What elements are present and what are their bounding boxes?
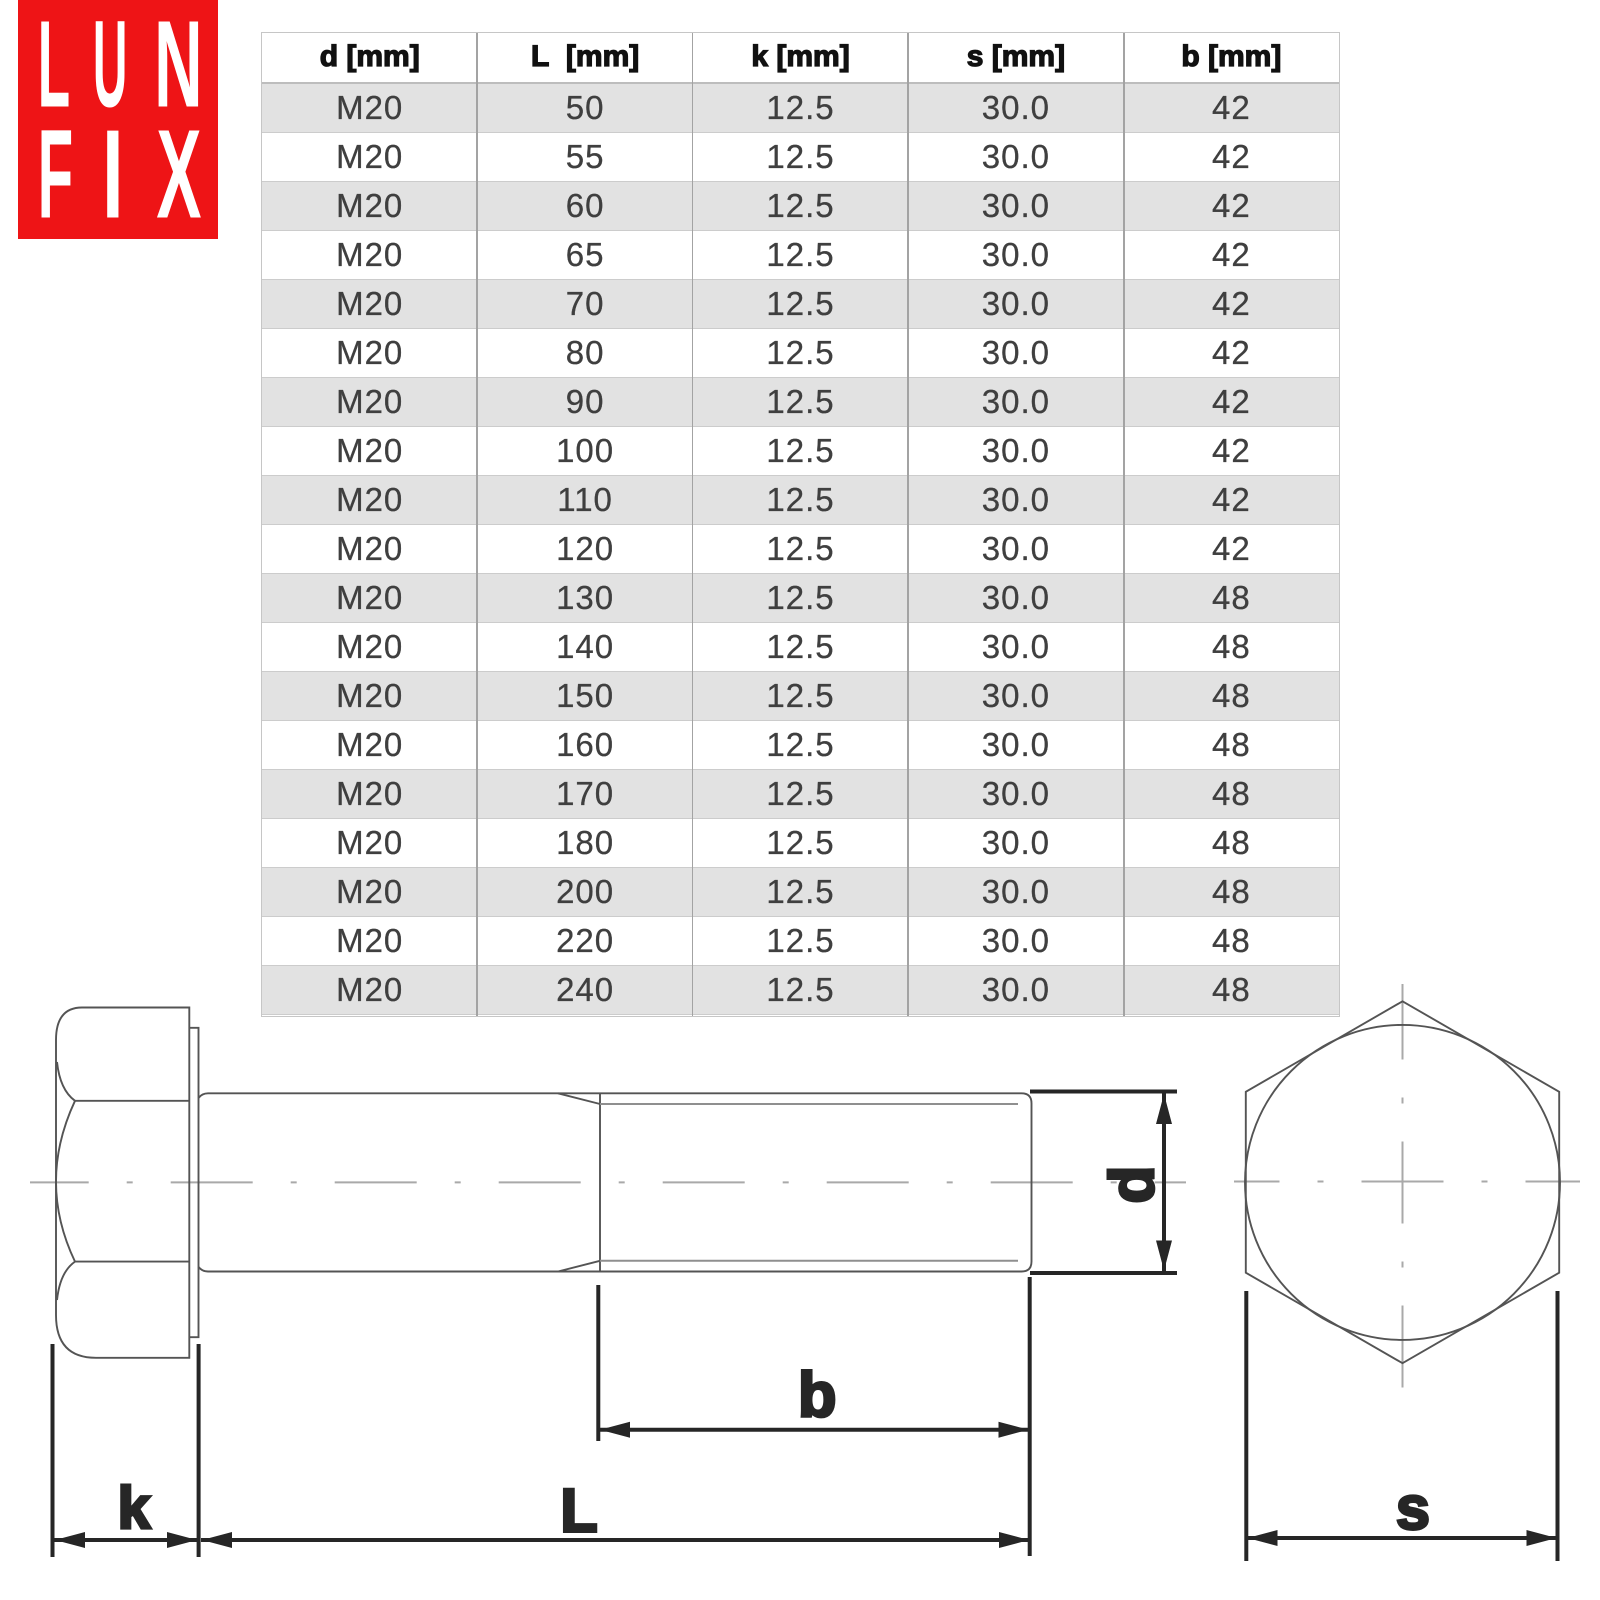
svg-text:k: k xyxy=(118,1475,151,1541)
svg-text:s: s xyxy=(1396,1474,1430,1542)
svg-text:L: L xyxy=(560,1477,597,1545)
svg-text:b: b xyxy=(798,1361,836,1431)
svg-text:d: d xyxy=(1098,1166,1167,1204)
